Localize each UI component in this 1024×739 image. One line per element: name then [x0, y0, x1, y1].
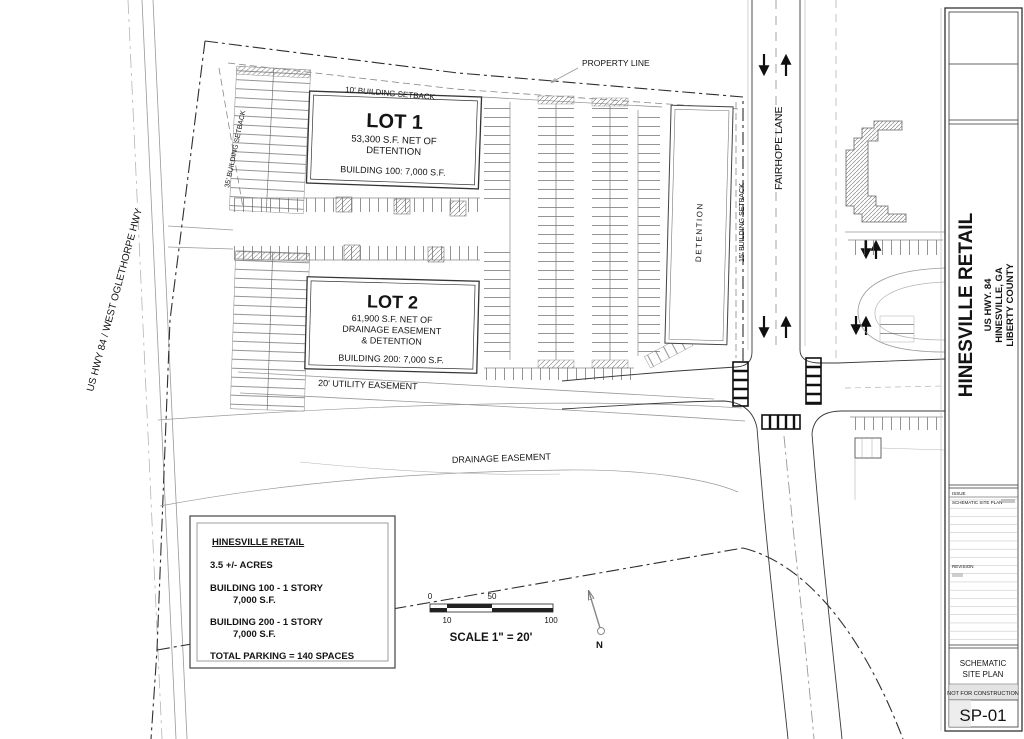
detention-basin: DETENTION — [665, 105, 733, 345]
summary-box: HINESVILLE RETAIL 3.5 +/- ACRES BUILDING… — [190, 516, 395, 668]
lot2-area-line3: & DETENTION — [361, 335, 422, 347]
lot2-title: LOT 2 — [367, 291, 419, 312]
titleblock-address1: US HWY. 84 — [983, 278, 994, 332]
crosswalks — [733, 358, 821, 429]
parking-middle-strip — [234, 197, 480, 262]
fairhope-lane-label: FAIRHOPE LANE — [773, 107, 785, 190]
revision-rows — [949, 499, 1018, 645]
existing-building-footprint — [846, 121, 906, 222]
us-hwy-label: US HWY 84 / WEST OGLETHORPE HWY — [85, 207, 145, 393]
detention-label: DETENTION — [694, 202, 705, 262]
titleblock-project: HINESVILLE RETAIL — [956, 212, 977, 397]
site-plan-sheet: LOT 1 53,300 S.F. NET OF DETENTION BUILD… — [0, 0, 1024, 739]
summary-building200-line1: BUILDING 200 - 1 STORY — [210, 617, 324, 628]
scale-tick-50: 50 — [488, 592, 497, 601]
parking-west-block-upper — [229, 66, 310, 214]
titleblock-address2: HINESVILLE, GA — [994, 267, 1005, 343]
utility-easement-label: 20' UTILITY EASEMENT — [318, 378, 418, 391]
drainage-easement-label: DRAINAGE EASEMENT — [452, 452, 552, 465]
setback-15-label: 15' BUILDING SETBACK — [739, 183, 746, 262]
lot1-area-line2: DETENTION — [366, 145, 421, 158]
site-plan-drawing: LOT 1 53,300 S.F. NET OF DETENTION BUILD… — [0, 0, 1024, 739]
scale-tick-10: 10 — [443, 616, 452, 625]
title-block: HINESVILLE RETAIL US HWY. 84 HINESVILLE,… — [941, 8, 1022, 731]
summary-acres: 3.5 +/- ACRES — [210, 560, 273, 571]
parking-center-field — [482, 96, 693, 380]
sheet-type-line2: SITE PLAN — [963, 670, 1004, 679]
lot1-building: LOT 1 53,300 S.F. NET OF DETENTION BUILD… — [306, 91, 481, 189]
lot1-title: LOT 1 — [366, 110, 423, 134]
issue-label: ISSUE — [952, 491, 966, 496]
scale-tick-100: 100 — [544, 616, 558, 625]
summary-title: HINESVILLE RETAIL — [212, 537, 304, 548]
lot2-area-line1: 61,900 S.F. NET OF — [352, 313, 434, 325]
east-parcel — [845, 121, 945, 500]
lot2-building: LOT 2 61,900 S.F. NET OF DRAINAGE EASEME… — [305, 277, 479, 373]
revision-smudge — [952, 573, 963, 577]
north-arrow: N — [589, 592, 605, 651]
revision-label: REVISION — [952, 564, 974, 569]
scale-tick-0: 0 — [428, 592, 433, 601]
north-label: N — [596, 640, 603, 651]
titleblock-address3: LIBERTY COUNTY — [1005, 263, 1016, 347]
summary-building100-line2: 7,000 S.F. — [233, 595, 276, 606]
parking-west-block-lower — [230, 251, 309, 411]
property-line-label: PROPERTY LINE — [582, 58, 650, 68]
disclaimer: NOT FOR CONSTRUCTION — [947, 691, 1019, 697]
sheet-number: SP-01 — [959, 706, 1006, 725]
sheet-type-line1: SCHEMATIC — [960, 659, 1007, 668]
summary-building100-line1: BUILDING 100 - 1 STORY — [210, 583, 324, 594]
summary-total-parking: TOTAL PARKING = 140 SPACES — [210, 651, 354, 662]
summary-building200-line2: 7,000 S.F. — [233, 629, 276, 640]
scale-caption: SCALE 1" = 20' — [450, 632, 533, 644]
